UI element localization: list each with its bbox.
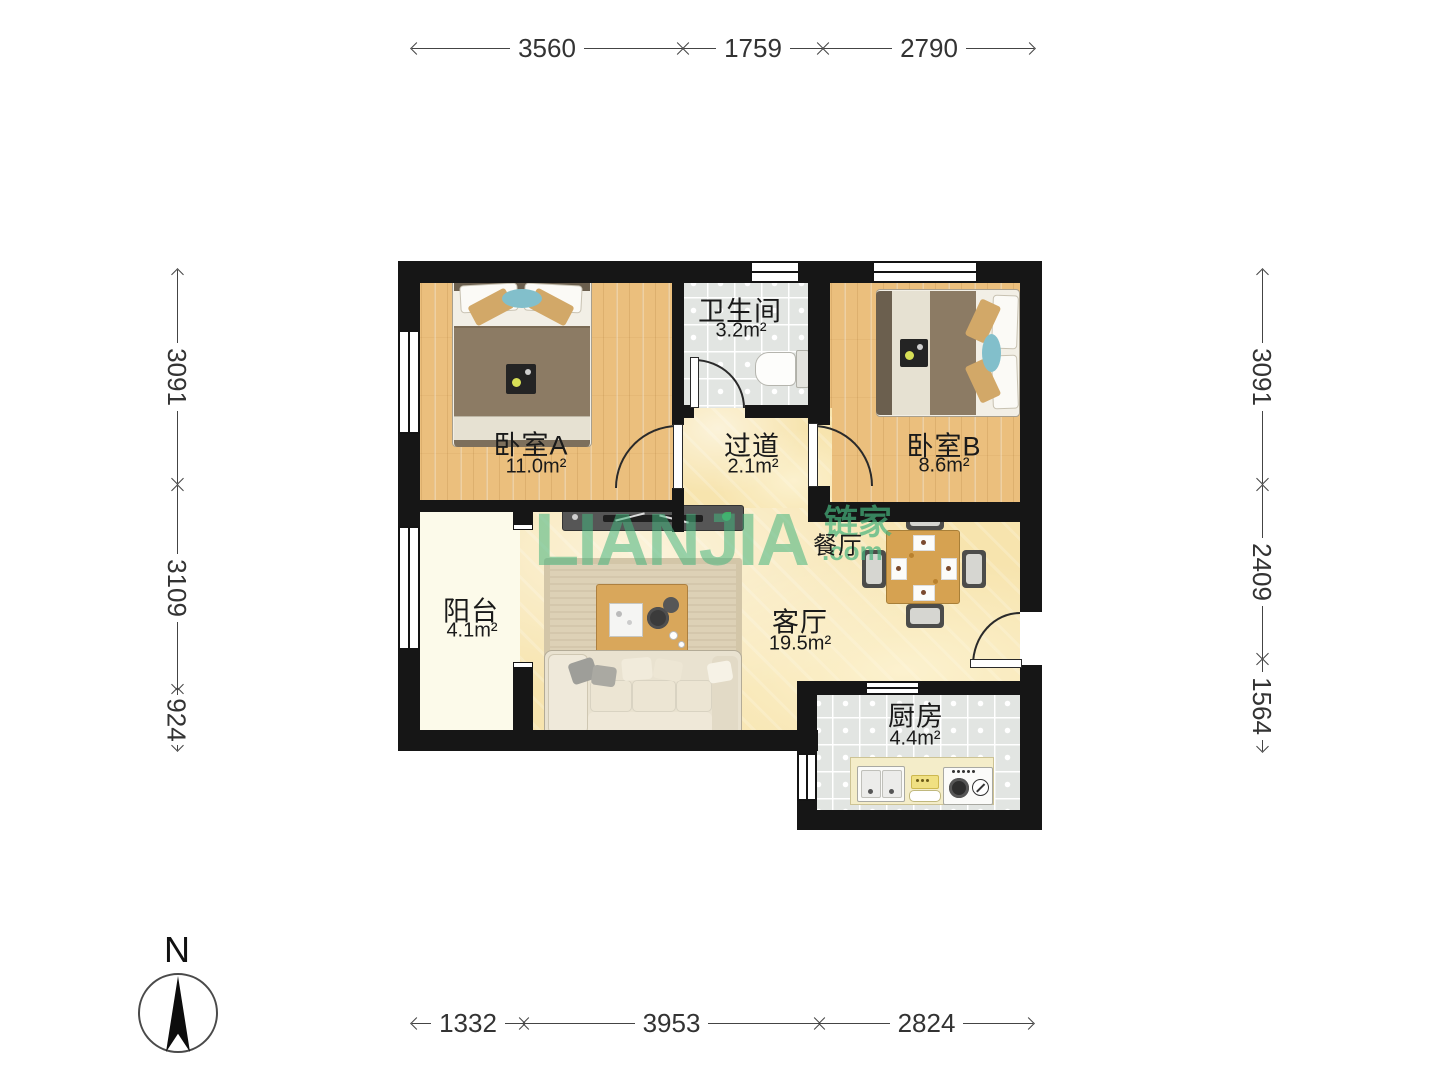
bed-b bbox=[876, 289, 1020, 417]
window-left-bedroomA bbox=[398, 330, 420, 434]
dim-left-3: 924 bbox=[163, 689, 191, 750]
living-room-area: 19.5m² bbox=[769, 633, 831, 656]
window-top-bathroom bbox=[750, 261, 800, 283]
kitchen-counter bbox=[850, 757, 994, 805]
balcony-divider-stub-bottom bbox=[513, 668, 533, 750]
dim-bottom-3: 2824 bbox=[820, 1008, 1033, 1038]
toilet bbox=[755, 350, 809, 388]
outer-wall-right bbox=[1020, 261, 1042, 830]
dim-top-1: 3560 bbox=[412, 33, 682, 63]
bathroom-area: 3.2m² bbox=[715, 320, 766, 343]
sofa bbox=[544, 650, 742, 742]
kitchen-area: 4.4m² bbox=[889, 728, 940, 751]
balcony-area: 4.1m² bbox=[446, 620, 497, 643]
cutting-board bbox=[911, 775, 939, 789]
bedroom-b-area: 8.6m² bbox=[918, 455, 969, 478]
wall-bedroomA-bathroom bbox=[672, 261, 684, 425]
kitchen-sink bbox=[857, 766, 905, 802]
bedroomA-door-leaf bbox=[673, 424, 683, 489]
window-kitchen bbox=[797, 753, 817, 801]
bathroom-wall-bottom-right bbox=[745, 405, 810, 418]
window-left-balcony bbox=[398, 526, 420, 650]
dim-bottom-2: 3953 bbox=[524, 1008, 819, 1038]
bed-a bbox=[452, 278, 592, 447]
dim-right-2: 2409 bbox=[1248, 486, 1276, 658]
window-top-bedroomB bbox=[872, 261, 978, 283]
dining-table bbox=[886, 530, 960, 604]
dim-top-2: 1759 bbox=[684, 33, 822, 63]
coffee-table bbox=[596, 584, 688, 654]
kitchen-wall-bottom bbox=[797, 810, 1042, 830]
dim-bottom-1: 1332 bbox=[412, 1008, 524, 1038]
dim-right-3: 1564 bbox=[1248, 660, 1276, 751]
balcony-opening-tick-bottom bbox=[513, 662, 533, 668]
dim-right-1: 3091 bbox=[1248, 270, 1276, 483]
dining-room-label: 餐厅 bbox=[813, 526, 863, 561]
kitchen-door-threshold bbox=[865, 681, 920, 695]
bedroom-a-area: 11.0m² bbox=[506, 456, 567, 479]
dim-top-3: 2790 bbox=[824, 33, 1034, 63]
dim-left-2: 3109 bbox=[163, 486, 191, 689]
compass: N bbox=[130, 925, 230, 1060]
bedroomB-door-leaf bbox=[808, 423, 818, 487]
entry-door-leaf bbox=[970, 659, 1022, 668]
hallway-area: 2.1m² bbox=[727, 456, 778, 479]
dim-left-1: 3091 bbox=[163, 270, 191, 483]
floor-plan-canvas: LIANJIA 链家 .com 卧室A 11.0m² 卫生间 3.2m² 过道 … bbox=[0, 0, 1440, 1080]
bathroom-door-leaf bbox=[690, 357, 699, 408]
balcony-opening-tick-top bbox=[513, 524, 533, 530]
compass-north-label: N bbox=[164, 929, 190, 971]
outer-wall-bottom-left bbox=[398, 730, 818, 751]
wall-bathroom-bedroomB bbox=[808, 261, 830, 425]
entry-opening bbox=[1020, 612, 1042, 665]
watermark-brand: LIANJIA bbox=[534, 503, 808, 577]
stove bbox=[943, 767, 993, 805]
